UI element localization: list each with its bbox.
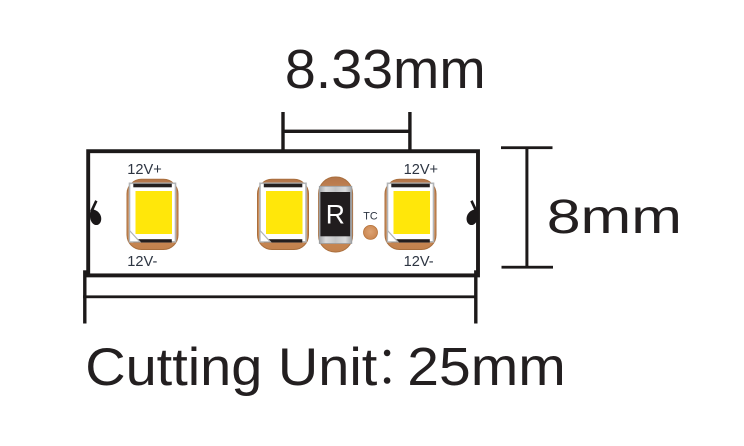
svg-text:8.33mm: 8.33mm <box>285 39 486 100</box>
svg-text:8mm: 8mm <box>547 189 682 244</box>
svg-text:12V-: 12V- <box>404 254 434 270</box>
svg-text:12V-: 12V- <box>127 254 157 270</box>
svg-text:Cutting Unit: Cutting Unit <box>85 338 377 397</box>
svg-text:R: R <box>326 199 345 229</box>
svg-text:25mm: 25mm <box>407 337 565 397</box>
svg-text:TC: TC <box>363 211 378 223</box>
svg-text:12V+: 12V+ <box>404 162 439 178</box>
svg-text:12V+: 12V+ <box>127 162 162 178</box>
